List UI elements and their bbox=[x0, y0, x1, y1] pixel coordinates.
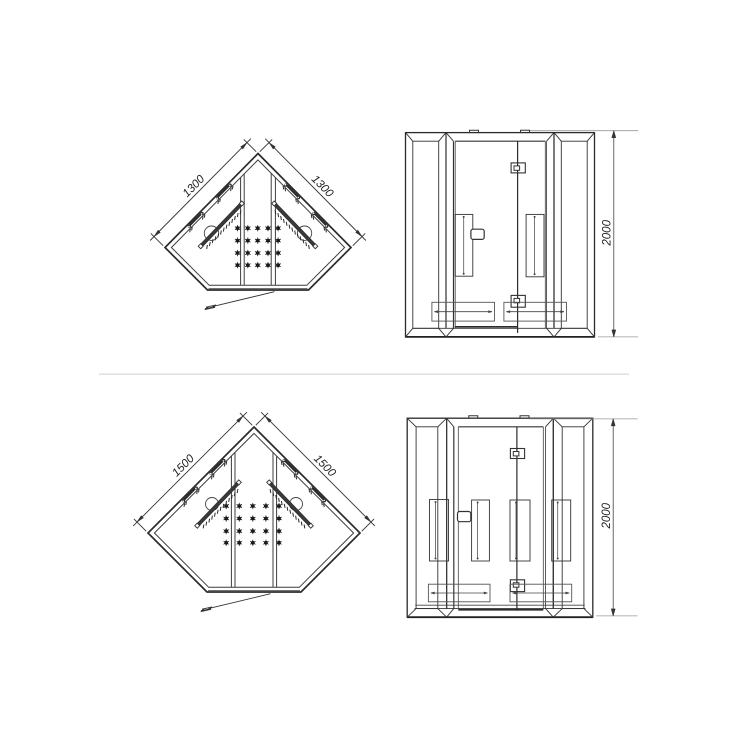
svg-text:2000: 2000 bbox=[601, 502, 613, 529]
svg-text:2000: 2000 bbox=[601, 219, 613, 246]
